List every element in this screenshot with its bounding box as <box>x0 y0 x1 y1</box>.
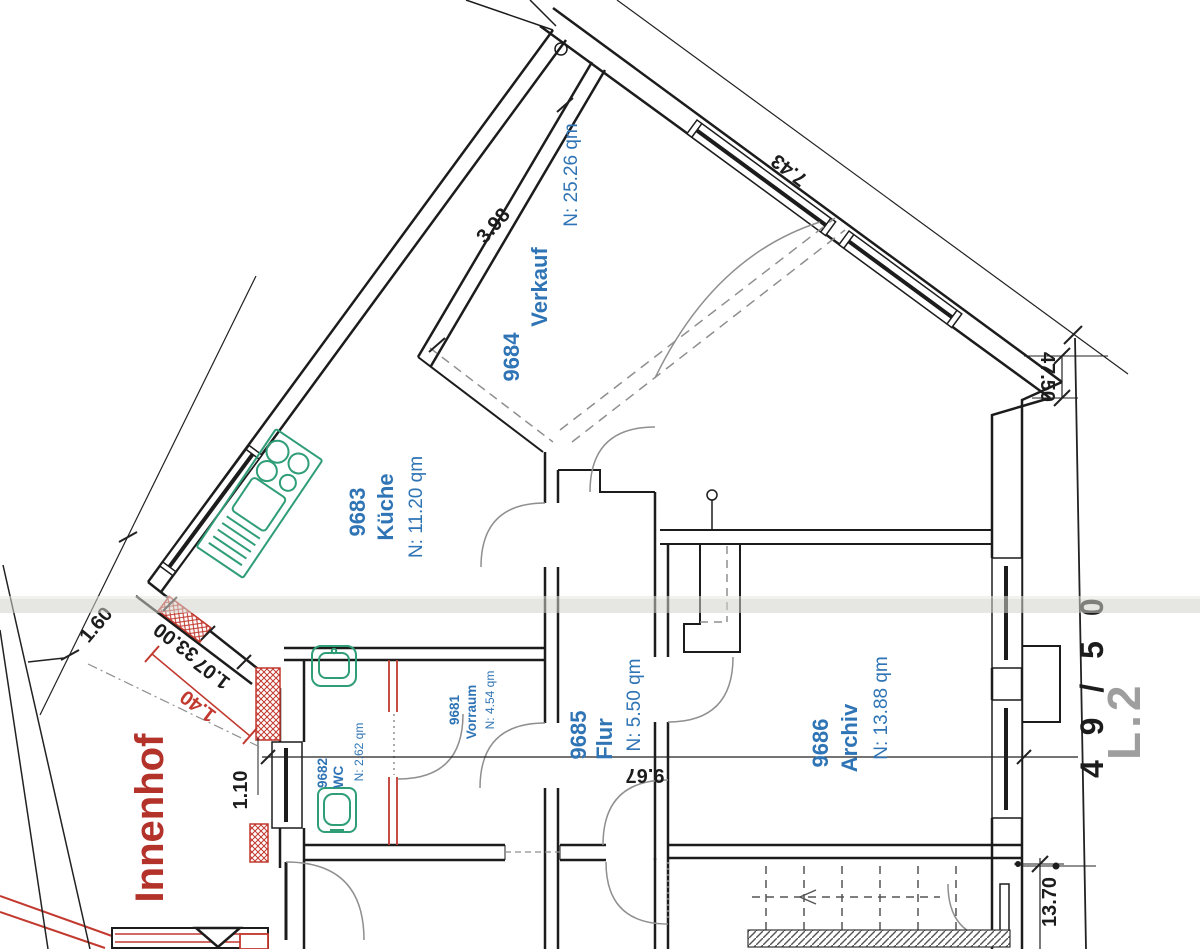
dim-1-40: 1.40 <box>176 685 220 726</box>
room-label-archiv: 9686 Archiv N: 13.88 qm <box>808 656 892 772</box>
floorplan-drawing: 9684 Verkauf N: 25.26 qm 9683 Küche N: 1… <box>0 0 1200 949</box>
room-area: N: 5.50 qm <box>624 659 645 752</box>
room-area: N: 4.54 qm <box>483 671 497 730</box>
window-wc <box>272 742 302 828</box>
stove-burner <box>277 472 299 494</box>
room-number: 9682 <box>315 758 330 788</box>
room-name: Flur <box>592 718 617 760</box>
dim-13-70: 13.70 <box>1039 877 1061 927</box>
room-label-kueche: 9683 Küche N: 11.20 qm <box>345 456 427 558</box>
room-name: Vorraum <box>464 685 479 740</box>
wc-toilet <box>318 788 356 832</box>
scan-artifact-band <box>0 596 1200 613</box>
courtyard-label: Innenhof <box>128 733 172 903</box>
door-swings <box>286 218 1009 940</box>
room-number: 9685 <box>566 711 591 760</box>
wc-sink <box>312 646 356 686</box>
floorplan-page: 9684 Verkauf N: 25.26 qm 9683 Küche N: 1… <box>0 0 1200 949</box>
window-top-1 <box>687 120 836 236</box>
room-number: 9684 <box>499 332 524 382</box>
room-name: Verkauf <box>527 247 552 327</box>
dim-1-10: 1.10 <box>230 771 252 810</box>
dim-1-07: 1.07 <box>190 652 234 693</box>
dim-47-50: 47.50 <box>1036 352 1058 402</box>
room-number: 9683 <box>345 488 370 537</box>
room-label-wc: 9682 WC N: 2.62 qm <box>315 723 366 789</box>
window-top-2 <box>839 231 962 328</box>
room-name: Küche <box>373 473 398 540</box>
window-right-2 <box>992 700 1022 818</box>
dimension-labels: 7.43 3.98 1.60 47.50 33.00 1.07 1.40 1.1… <box>75 149 1061 927</box>
dim-9-67: 9.67 <box>626 764 665 786</box>
room-name: WC <box>331 766 346 789</box>
room-area: N: 2.62 qm <box>352 723 366 782</box>
room-area: N: 13.88 qm <box>871 656 892 760</box>
room-number: 9686 <box>808 719 833 768</box>
room-name: Archiv <box>837 703 862 772</box>
parcel-l2-label: L.2 <box>1098 682 1150 760</box>
room-number: 9681 <box>447 694 462 725</box>
room-label-verkauf: 9684 Verkauf N: 25.26 qm <box>499 123 582 381</box>
parcel-labels: 4 9 / 5 0 L.2 <box>1074 590 1150 778</box>
switch-symbol <box>707 490 717 500</box>
room-label-vorraum: 9681 Vorraum N: 4.54 qm <box>447 671 497 740</box>
room-label-flur: 9685 Flur N: 5.50 qm <box>566 659 645 760</box>
dim-3-98: 3.98 <box>472 204 514 248</box>
room-area: N: 11.20 qm <box>406 456 427 558</box>
wall-pier <box>1022 646 1060 722</box>
room-area: N: 25.26 qm <box>561 123 582 227</box>
